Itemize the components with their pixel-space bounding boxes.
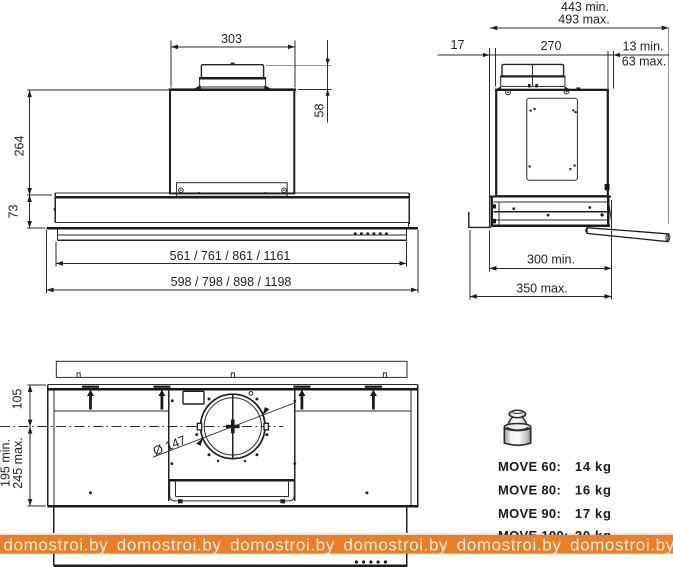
svg-text:303: 303: [221, 32, 242, 46]
svg-text:245 max.: 245 max.: [11, 437, 25, 488]
svg-text:300 min.: 300 min.: [527, 253, 575, 267]
svg-text:561 / 761 / 861 / 1161: 561 / 761 / 861 / 1161: [170, 249, 291, 263]
svg-text:domostroi.by: domostroi.by: [4, 535, 109, 554]
svg-text:13 min.: 13 min.: [623, 39, 664, 53]
svg-text:MOVE 80:: MOVE 80:: [498, 483, 561, 498]
svg-text:MOVE 90:: MOVE 90:: [498, 506, 561, 521]
svg-text:domostroi.by: domostroi.by: [570, 535, 673, 554]
svg-text:105: 105: [11, 389, 25, 410]
svg-text:16 kg: 16 kg: [575, 483, 612, 498]
svg-text:MOVE 60:: MOVE 60:: [498, 459, 561, 474]
svg-text:58: 58: [313, 104, 327, 118]
svg-text:73: 73: [7, 205, 21, 219]
svg-text:63 max.: 63 max.: [622, 55, 666, 69]
svg-text:17 kg: 17 kg: [575, 506, 612, 521]
svg-text:17: 17: [451, 38, 465, 52]
svg-text:493 max.: 493 max.: [558, 13, 609, 27]
svg-text:598 / 798 / 898 / 1198: 598 / 798 / 898 / 1198: [171, 275, 292, 289]
svg-text:domostroi.by: domostroi.by: [457, 535, 562, 554]
svg-text:270: 270: [541, 39, 562, 53]
svg-text:264: 264: [13, 136, 27, 157]
svg-text:domostroi.by: domostroi.by: [230, 535, 335, 554]
svg-text:domostroi.by: domostroi.by: [343, 535, 448, 554]
svg-text:350 max.: 350 max.: [516, 281, 567, 295]
svg-text:domostroi.by: domostroi.by: [117, 535, 222, 554]
svg-text:14 kg: 14 kg: [575, 459, 612, 474]
